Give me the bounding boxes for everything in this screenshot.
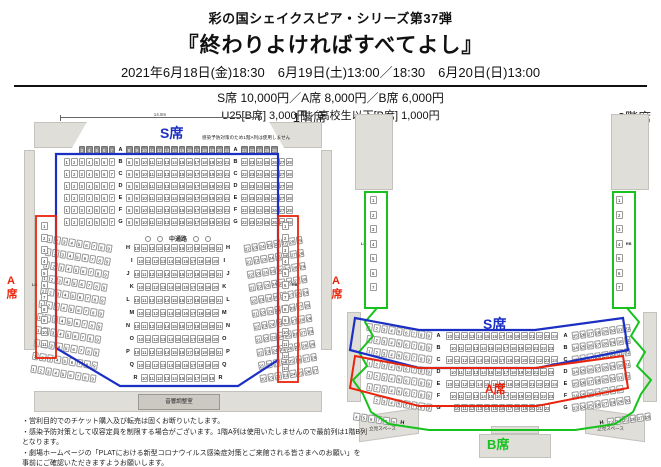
seat-cell: 5 <box>94 218 101 226</box>
seat-cell: 20 <box>209 244 216 252</box>
seat-cell: 24 <box>571 343 579 352</box>
seat-cell: 9 <box>425 355 433 364</box>
side-seat: 1 <box>616 196 623 204</box>
seat-cell: 27 <box>289 250 297 259</box>
seat-cell: 2 <box>373 360 381 369</box>
seat-cell: 14 <box>171 218 178 226</box>
seat-cell: 26 <box>295 355 303 364</box>
seat-cell: 21 <box>533 344 540 352</box>
seat-cell: 26 <box>273 239 281 248</box>
seat-cell: 3 <box>616 225 623 233</box>
seat-cell: 15 <box>171 270 178 278</box>
seat-cell: 30 <box>609 374 617 383</box>
seat-cell: 26 <box>586 341 594 350</box>
seat-cell: 10 <box>450 368 457 376</box>
seat-cell: 15 <box>179 146 186 154</box>
seat-cell: 26 <box>271 194 278 202</box>
seat-cell: 23 <box>607 418 615 427</box>
seat-cell: 23 <box>260 255 268 264</box>
seat-cell: 8 <box>98 243 106 252</box>
seat-cell: 28 <box>594 352 602 361</box>
seat-cell: 2 <box>37 366 45 375</box>
seat-cell: 4 <box>54 355 62 364</box>
seat-cell: 24 <box>256 170 263 178</box>
seat-cell: 2 <box>282 234 289 242</box>
row-letter: L <box>124 297 133 303</box>
seat-cell: 16 <box>186 170 193 178</box>
side-seat: 11 <box>41 340 48 348</box>
seat-cell: 13 <box>160 361 167 369</box>
seat-cell: 17 <box>186 270 193 278</box>
seat-cell: 24 <box>268 320 276 329</box>
seat-cell: 19 <box>521 404 528 412</box>
seat-cell: 20 <box>212 283 219 291</box>
seat-cell: 12 <box>156 218 163 226</box>
seat-cell: 12 <box>282 352 289 360</box>
seat-cell: 21 <box>224 206 231 214</box>
seat-cell: 26 <box>586 389 594 398</box>
seat-cell: 20 <box>212 257 219 265</box>
mid-block: 10111213141516171819202122 <box>445 404 559 412</box>
seat-cell: 8 <box>86 334 94 343</box>
seat-cell: 6 <box>101 158 108 166</box>
seat-cell: 12 <box>156 146 163 154</box>
seat-cell: 14 <box>164 270 171 278</box>
seat-cell: 16 <box>179 244 186 252</box>
seat-cell: 31 <box>616 373 624 382</box>
seat-cell: 26 <box>271 206 278 214</box>
seat-cell: 17 <box>190 257 197 265</box>
seat-cell: 24 <box>261 268 269 277</box>
seat-cell: 10 <box>134 322 141 330</box>
seat-cell: 16 <box>179 322 186 330</box>
row-letter: I <box>220 258 229 264</box>
seat-cell: 22 <box>259 308 267 317</box>
seat-cell: 21 <box>224 158 231 166</box>
seat-cell: 25 <box>264 194 271 202</box>
seat-cell: 8 <box>418 402 426 411</box>
seat-cell: 29 <box>601 351 609 360</box>
seat-cell: 23 <box>264 347 272 356</box>
seat-cell: 5 <box>41 269 48 277</box>
seat-cell: 7 <box>410 401 418 410</box>
seat-row: H101112131415161718192021H <box>110 244 246 252</box>
seat-cell: 1 <box>366 323 374 332</box>
seat-cell: 3 <box>79 218 86 226</box>
seat-cell: 23 <box>260 321 268 330</box>
seat-cell: 18 <box>506 332 513 340</box>
seat-cell: 10 <box>141 146 148 154</box>
seat-cell: 6 <box>403 340 411 349</box>
seat-cell: 9 <box>425 379 433 388</box>
seat-cell: 19 <box>209 182 216 190</box>
seat-cell: 1 <box>64 218 71 226</box>
seat-cell: 5 <box>94 146 101 154</box>
seat-cell: 10 <box>137 257 144 265</box>
row-letter: G <box>561 405 570 411</box>
side-seat: 4LB <box>370 240 377 248</box>
row-letter: M <box>220 310 229 316</box>
seat-cell: 27 <box>296 302 304 311</box>
prices-main: S席 10,000円／A席 8,000円／B席 6,000円 <box>0 89 661 106</box>
seat-cell: 14 <box>164 322 171 330</box>
seat-cell: 22 <box>253 322 261 331</box>
seat-cell: 20 <box>216 206 223 214</box>
row-letter: B <box>434 345 443 351</box>
seat-cell: 13 <box>160 335 167 343</box>
seat-cell: 21 <box>224 182 231 190</box>
seat-cell: 25 <box>269 267 277 276</box>
balcony-tag: LB <box>361 241 366 246</box>
seat-cell: 29 <box>305 314 313 323</box>
seat-cell: 6 <box>101 146 108 154</box>
seat-cell: 9 <box>92 348 100 357</box>
seat-cell: 16 <box>499 404 506 412</box>
seat-cell: 16 <box>491 332 498 340</box>
floor1-front-rows: 34567A89101112131415161718192021A2223242… <box>58 146 298 230</box>
seat-cell: 18 <box>510 344 517 352</box>
floor1-map: 1階席 14.9m 音響調整室 S席 感染予防対策のため1階A列は使用しません … <box>10 110 346 410</box>
row-letter: C <box>561 357 570 363</box>
seat-cell: 24 <box>551 356 558 364</box>
seat-cell: 11 <box>145 335 152 343</box>
seat-cell: 15 <box>175 257 182 265</box>
seat-cell: 14 <box>164 296 171 304</box>
seat-cell: 21 <box>224 218 231 226</box>
seat-row: P101112131415161718192021P <box>110 348 246 356</box>
seat-cell: 22 <box>256 348 264 357</box>
seat-cell: 4 <box>282 257 289 265</box>
seat-cell: 5 <box>395 351 403 360</box>
row-letter: N <box>124 323 133 329</box>
seat-cell: 22 <box>540 344 547 352</box>
side-seat: 3 <box>282 246 289 254</box>
seat-cell: 21 <box>216 296 223 304</box>
seat-cell: 25 <box>571 379 579 388</box>
seat-cell: 25 <box>264 170 271 178</box>
seat-cell: 1 <box>41 222 48 230</box>
seat-cell: 23 <box>249 194 256 202</box>
seat-cell: 2 <box>373 384 381 393</box>
seat-cell: 13 <box>473 368 480 376</box>
seat-cell: 20 <box>212 335 219 343</box>
seat-cell: 10 <box>454 404 461 412</box>
seat-cell: 10 <box>141 374 148 382</box>
seat-row: 23456789G10111213141516171819202122G2324… <box>353 404 651 412</box>
seat-cell: 8 <box>93 282 101 291</box>
seat-cell: 21 <box>536 404 543 412</box>
seat-cell: 24 <box>614 416 622 425</box>
seat-cell: 11 <box>149 218 156 226</box>
seat-cell: 26 <box>271 146 278 154</box>
seat-cell: 28 <box>291 263 299 272</box>
seat-cell: 16 <box>186 194 193 202</box>
seat-cell: 19 <box>209 218 216 226</box>
booth-top <box>491 426 539 434</box>
seat-cell: 12 <box>152 283 159 291</box>
seat-cell: 13 <box>160 283 167 291</box>
seat-cell: 1 <box>366 335 374 344</box>
seat-cell: 23 <box>249 170 256 178</box>
seat-cell: 12 <box>152 309 159 317</box>
seat-cell: 9 <box>134 218 141 226</box>
seat-cell: 24 <box>571 367 579 376</box>
seat-cell: 16 <box>186 206 193 214</box>
seat-cell: 18 <box>197 335 204 343</box>
seat-cell: 11 <box>458 344 465 352</box>
seat-cell: 21 <box>224 146 231 154</box>
seat-cell: 6 <box>101 170 108 178</box>
seat-cell: 30 <box>616 361 624 370</box>
seat-cell: 21 <box>529 380 536 388</box>
seat-cell: 8 <box>41 305 48 313</box>
seat-cell: 12 <box>149 244 156 252</box>
seat-cell: 18 <box>197 257 204 265</box>
seat-cell: 12 <box>156 182 163 190</box>
seat-cell: 23 <box>544 380 551 388</box>
seat-cell: 25 <box>264 182 271 190</box>
seat-cell: 28 <box>644 412 652 421</box>
seat-cell: 21 <box>529 356 536 364</box>
seat-cell: 9 <box>97 309 105 318</box>
seat-cell: 13 <box>282 364 289 372</box>
seat-cell: 7 <box>410 341 418 350</box>
row-letter: O <box>127 336 136 342</box>
seat-cell: 17 <box>190 335 197 343</box>
seat-cell: 23 <box>263 281 271 290</box>
seat-cell: 17 <box>503 344 510 352</box>
seat-cell: 2 <box>373 348 381 357</box>
side-seat: 10 <box>282 328 289 336</box>
seat-cell: 16 <box>186 374 193 382</box>
seat-cell: 10 <box>134 348 141 356</box>
seat-cell: 7 <box>410 365 418 374</box>
seat-cell: 5 <box>282 269 289 277</box>
seat-cell: 28 <box>288 237 296 246</box>
seat-cell: 28 <box>609 398 617 407</box>
seat-cell: 17 <box>499 356 506 364</box>
seat-cell: 14 <box>171 146 178 154</box>
seat-cell: 11 <box>149 194 156 202</box>
seat-cell: 13 <box>469 380 476 388</box>
seat-cell: 27 <box>279 194 286 202</box>
seat-cell: 17 <box>190 361 197 369</box>
seat-cell: 26 <box>271 182 278 190</box>
seat-cell: 10 <box>134 244 141 252</box>
seat-cell: 2 <box>373 324 381 333</box>
seat-cell: 17 <box>190 283 197 291</box>
seat-cell: 7 <box>616 283 623 291</box>
seat-cell: 23 <box>249 218 256 226</box>
side-seat: 12 <box>282 352 289 360</box>
seat-cell: 21 <box>245 257 253 266</box>
seat-cell: 30 <box>616 385 624 394</box>
seat-cell: 7 <box>410 353 418 362</box>
seat-cell: 13 <box>164 170 171 178</box>
seat-cell: 6 <box>101 194 108 202</box>
side-seat: 5 <box>370 254 377 262</box>
seat-cell: 20 <box>216 194 223 202</box>
seat-cell: 10 <box>141 182 148 190</box>
seat-cell: 17 <box>194 170 201 178</box>
seat-cell: 4 <box>388 350 396 359</box>
seat-cell: 5 <box>395 399 403 408</box>
seat-row: 1234567B89101112131415161718192021B22232… <box>58 158 298 166</box>
seat-cell: 12 <box>461 380 468 388</box>
seat-cell: 28 <box>594 328 602 337</box>
seat-cell: 4 <box>388 398 396 407</box>
seat-cell: 5 <box>395 375 403 384</box>
seat-cell: 27 <box>594 388 602 397</box>
row-letter: M <box>127 310 136 316</box>
seat-cell: 21 <box>255 335 263 344</box>
seat-cell: 15 <box>175 361 182 369</box>
seat-cell: 9 <box>425 367 433 376</box>
seat-cell: 28 <box>601 363 609 372</box>
seat-cell: 27 <box>279 206 286 214</box>
seat-cell: 11 <box>282 340 289 348</box>
seat-cell: 1 <box>64 170 71 178</box>
note-line: ・劇場ホームページの「PLATにおける新型コロナウイルス感染症対策とご来館される… <box>22 449 367 467</box>
seat-cell: 22 <box>536 380 543 388</box>
seat-cell: 2 <box>39 353 47 362</box>
seat-cell: 9 <box>390 418 398 427</box>
floor2-rows: 123456789A101112131415161718192021222324… <box>353 332 651 416</box>
seat-cell: 2 <box>71 182 78 190</box>
row-letter: P <box>224 349 233 355</box>
seat-cell: 23 <box>266 307 274 316</box>
seat-cell: 23 <box>544 332 551 340</box>
seat-cell: 9 <box>425 331 433 340</box>
seat-cell: 22 <box>250 296 258 305</box>
seat-cell: 16 <box>179 270 186 278</box>
seat-cell: 22 <box>243 244 251 253</box>
seat-cell: 3 <box>79 182 86 190</box>
seat-cell: 17 <box>194 194 201 202</box>
seat-cell: 31 <box>616 325 624 334</box>
seat-cell: 19 <box>209 170 216 178</box>
floor1-right-a-column: 123456RB78910111213 <box>282 222 289 375</box>
seat-cell: 24 <box>289 369 297 378</box>
seat-cell: 29 <box>616 397 624 406</box>
floor2-a-zone-label: A席 <box>485 380 506 397</box>
seat-cell: 6 <box>403 328 411 337</box>
seat-cell: 14 <box>164 348 171 356</box>
seat-cell: 16 <box>186 218 193 226</box>
seat-cell: 3 <box>380 337 388 346</box>
seat-cell: 11 <box>458 368 465 376</box>
seat-cell: 14 <box>480 344 487 352</box>
seat-cell: 25 <box>586 401 594 410</box>
side-seat: 11 <box>282 340 289 348</box>
seat-cell: 2 <box>71 170 78 178</box>
seat-cell: 21 <box>216 322 223 330</box>
row-letter: C <box>231 171 240 177</box>
seat-cell: 4 <box>86 182 93 190</box>
seat-cell: 24 <box>267 254 275 263</box>
seat-cell: 11 <box>461 404 468 412</box>
seat-cell: 4 <box>60 303 68 312</box>
seat-cell: 8 <box>418 342 426 351</box>
seat-cell: 10 <box>137 361 144 369</box>
seat-cell: 5 <box>94 158 101 166</box>
seat-cell: 24 <box>551 380 558 388</box>
seat-cell: 25 <box>621 415 629 424</box>
seat-cell: 17 <box>186 244 193 252</box>
seat-cell: 25 <box>264 146 271 154</box>
seat-row: L101112131415161718192021L <box>110 296 246 304</box>
seat-cell: 14 <box>164 244 171 252</box>
seat-cell: 4 <box>55 342 63 351</box>
seat-cell: 17 <box>506 404 513 412</box>
row-letter: B <box>231 159 240 165</box>
seat-cell: 12 <box>465 368 472 376</box>
seat-cell: 26 <box>304 367 312 376</box>
seat-cell: 13 <box>156 348 163 356</box>
side-seat: 4RB <box>616 240 623 248</box>
performance-dates: 2021年6月18日(金)18:30 6月19日(土)13:00／18:30 6… <box>0 62 661 81</box>
seat-cell: 22 <box>241 182 248 190</box>
seat-cell: 6 <box>282 281 289 289</box>
seat-cell: 15 <box>488 344 495 352</box>
seat-cell: 6 <box>73 319 81 328</box>
seat-cell: 21 <box>533 392 540 400</box>
side-seat: 1 <box>282 222 289 230</box>
seat-cell: 3 <box>380 385 388 394</box>
seat-cell: 7 <box>109 146 116 154</box>
row-letter: D <box>116 183 125 189</box>
seat-cell: 3 <box>79 170 86 178</box>
seat-cell: 15 <box>171 244 178 252</box>
seating-chart-page: 彩の国シェイクスピア・シリーズ第37弾 『終わりよければすべてよし』 2021年… <box>0 0 661 467</box>
seat-cell: 5 <box>94 206 101 214</box>
seat-cell: 20 <box>209 322 216 330</box>
seat-cell: 2 <box>41 234 48 242</box>
seat-cell: 7 <box>375 415 383 424</box>
side-seat: 8 <box>282 305 289 313</box>
seat-cell: 15 <box>484 356 491 364</box>
seat-cell: 14 <box>480 368 487 376</box>
seat-cell: 25 <box>264 206 271 214</box>
seat-cell: 10 <box>137 309 144 317</box>
seat-cell: 4 <box>41 257 48 265</box>
side-seat: 2 <box>370 211 377 219</box>
seat-cell: 18 <box>197 309 204 317</box>
seat-cell: 15 <box>491 404 498 412</box>
floor1-rear-center-rows: H101112131415161718192021HI1011121314151… <box>110 244 246 387</box>
seat-cell: 25 <box>579 390 587 399</box>
seat-cell: 23 <box>254 269 262 278</box>
mid-block: 101112131415161718192021222324 <box>445 332 559 340</box>
seat-cell: 5 <box>395 363 403 372</box>
row-letter: E <box>434 381 443 387</box>
side-seat: 6LB <box>41 281 48 289</box>
seat-cell: 27 <box>586 329 594 338</box>
seat-cell: 16 <box>186 146 193 154</box>
seat-cell: 4 <box>65 264 73 273</box>
seat-cell: 13 <box>156 296 163 304</box>
seat-row: 1234567D89101112131415161718192021D22232… <box>58 182 298 190</box>
seat-cell: 10 <box>137 283 144 291</box>
seat-cell: 20 <box>216 158 223 166</box>
seat-cell: 31 <box>616 349 624 358</box>
mid-block: 1011121314151617181920212223 <box>445 344 559 352</box>
seat-cell: 11 <box>141 322 148 330</box>
seat-cell: 12 <box>461 356 468 364</box>
balcony-tag: LB <box>32 282 37 287</box>
side-seat: 2 <box>616 211 623 219</box>
seat-row: 1234567E89101112131415161718192021E22232… <box>58 194 298 202</box>
